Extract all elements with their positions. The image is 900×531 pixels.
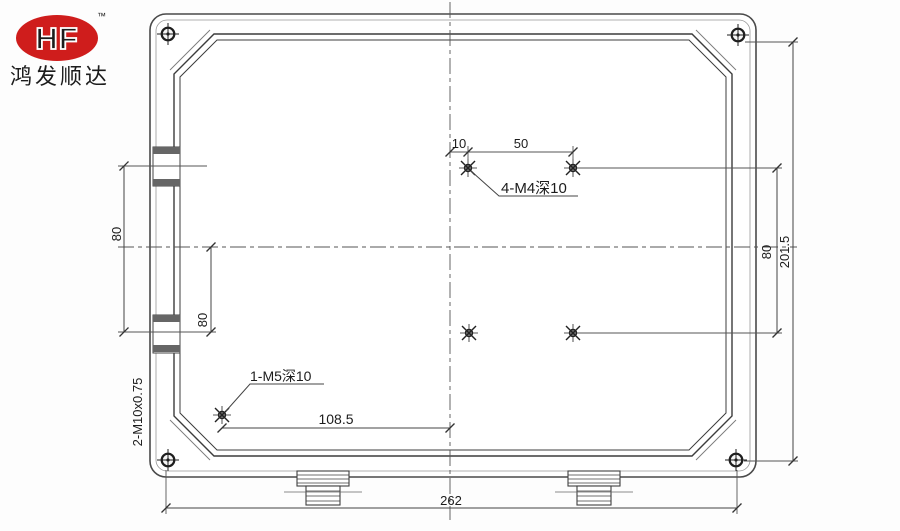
enclosure-outline [150, 14, 756, 477]
dim-label-top-pitch: 50 [514, 136, 528, 151]
dim-label-left-lower: 80 [195, 313, 210, 327]
brand-logo: HF ™ 鸿发顺达 [10, 11, 110, 89]
dim-label-bottom-overall: 262 [440, 493, 462, 508]
note-label-top-holes: 4-M4深10 [501, 180, 567, 197]
hinge-block [153, 147, 180, 186]
brand-mark-text: HF [35, 21, 78, 56]
dim-label-top-offset: 10 [452, 136, 466, 151]
dim-label-right-overall: 201.5 [777, 236, 792, 269]
trademark-text: ™ [97, 11, 106, 21]
note-label-glands: 2-M10x0.75 [130, 378, 145, 447]
dim-label-m5-offset: 108.5 [318, 411, 353, 427]
hinge-block [153, 315, 180, 353]
company-name-text: 鸿发顺达 [10, 64, 110, 89]
technical-drawing-page: HF ™ 鸿发顺达 [0, 0, 900, 531]
enclosure-drawing: HF ™ 鸿发顺达 [0, 0, 900, 531]
dim-label-left-upper: 80 [109, 227, 124, 241]
hole-position-marker [460, 324, 478, 342]
dim-label-right-holes: 80 [759, 245, 774, 259]
note-label-m5: 1-M5深10 [250, 368, 312, 384]
